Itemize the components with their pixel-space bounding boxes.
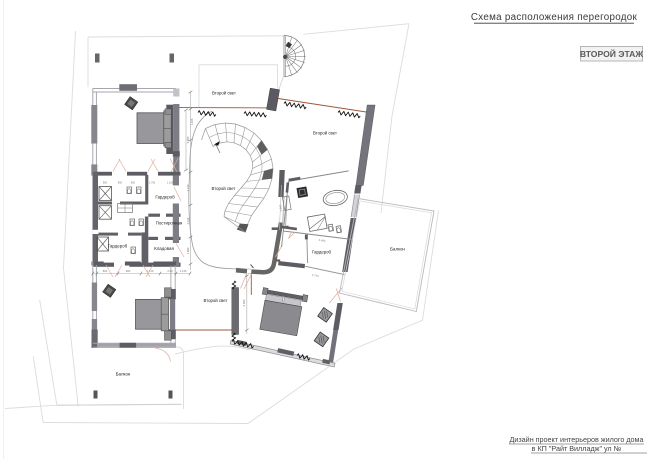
svg-text:2.135: 2.135: [186, 217, 190, 224]
svg-text:Гардероб: Гардероб: [155, 195, 175, 200]
svg-text:ВТОРОЙ ЭТАЖ: ВТОРОЙ ЭТАЖ: [580, 48, 643, 59]
svg-text:1.710: 1.710: [147, 269, 154, 273]
svg-text:Постирочная: Постирочная: [156, 220, 183, 225]
svg-text:Балкон: Балкон: [116, 372, 131, 377]
svg-text:600: 600: [131, 181, 136, 184]
svg-text:Схема расположения перегородок: Схема расположения перегородок: [471, 12, 638, 23]
svg-text:Второй свет: Второй свет: [313, 131, 337, 136]
svg-text:800: 800: [103, 269, 108, 273]
svg-text:1.405: 1.405: [190, 118, 194, 125]
svg-text:Гардероб: Гардероб: [312, 249, 331, 254]
svg-text:900: 900: [103, 181, 108, 184]
svg-text:2.00: 2.00: [167, 269, 173, 273]
svg-text:Гардероб: Гардероб: [108, 243, 128, 248]
svg-text:1.100: 1.100: [167, 181, 174, 184]
svg-text:2.135: 2.135: [186, 184, 190, 191]
svg-text:800: 800: [118, 181, 123, 184]
svg-text:Дизайн проект интерьеров жилог: Дизайн проект интерьеров жилого дома: [510, 435, 644, 444]
svg-text:5.060: 5.060: [242, 299, 246, 306]
svg-text:1.135: 1.135: [180, 269, 187, 273]
svg-text:900: 900: [126, 269, 131, 273]
svg-text:Второй свет: Второй свет: [211, 186, 235, 191]
svg-text:Второй свет: Второй свет: [203, 298, 227, 303]
svg-text:Второй свет: Второй свет: [212, 91, 236, 96]
svg-text:1.890: 1.890: [186, 247, 190, 254]
svg-text:Кладовая: Кладовая: [154, 246, 174, 251]
svg-text:Балкон: Балкон: [390, 247, 405, 252]
svg-text:1.700: 1.700: [149, 181, 156, 184]
svg-text:в КП "Райт Вилладж" ул №: в КП "Райт Вилладж" ул №: [532, 444, 622, 453]
svg-text:4.905: 4.905: [186, 136, 190, 143]
